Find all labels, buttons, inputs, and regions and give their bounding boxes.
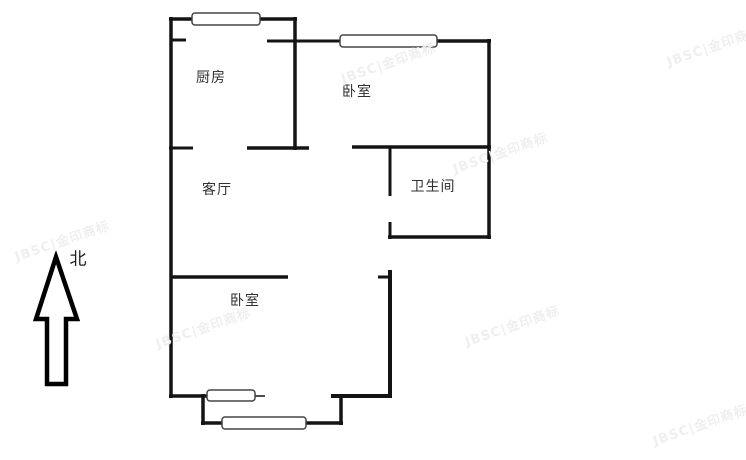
north-label: 北 bbox=[70, 245, 87, 270]
room-label-living-room: 客厅 bbox=[202, 179, 232, 199]
window-kitchen bbox=[192, 13, 260, 25]
floor-plan: 北 厨房 卧室 客厅 卫生间 卧室 JBSC|金印商标 JBSC|金印商标 JB… bbox=[0, 0, 746, 460]
windows bbox=[192, 13, 437, 429]
north-arrow-icon bbox=[36, 257, 77, 384]
window-balcony bbox=[222, 417, 306, 429]
room-label-kitchen: 厨房 bbox=[196, 67, 226, 87]
room-label-bathroom: 卫生间 bbox=[411, 176, 456, 196]
window-bedroom-bottom bbox=[207, 390, 255, 401]
